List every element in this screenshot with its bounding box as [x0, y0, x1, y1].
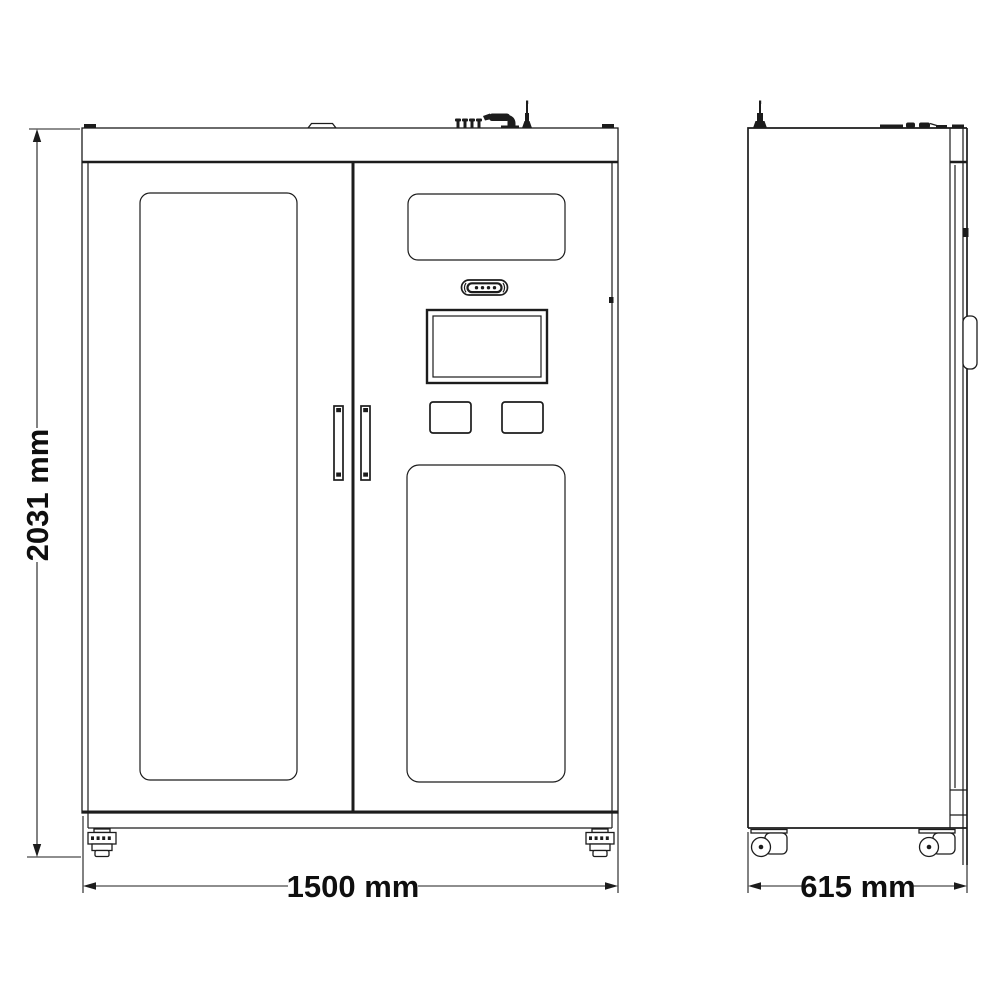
arrowhead-right [954, 882, 967, 890]
pipe-fittings-icon [455, 119, 482, 129]
leveling-caster-front-right [586, 829, 614, 857]
side-top-fittings [753, 101, 964, 129]
side-body [748, 128, 977, 865]
arrowhead-up [33, 129, 41, 142]
width-dimension-label: 1500 mm [287, 869, 420, 904]
side-view [748, 101, 977, 866]
arrowhead-down [33, 844, 41, 857]
depth-dimension-label: 615 mm [800, 869, 915, 904]
height-dimension-label: 2031 mm [20, 429, 55, 562]
door-hinge-mark [609, 297, 614, 303]
cabinet-dimension-drawing: 2031 mm 1500 mm 615 mm [0, 0, 1000, 1000]
arrowhead-left [83, 882, 96, 890]
swivel-caster-side-front [751, 830, 787, 857]
technical-drawing-page: 2031 mm 1500 mm 615 mm [0, 0, 1000, 1000]
indicator-dot [493, 286, 496, 289]
cabinet-body-outline [82, 128, 618, 813]
arrowhead-right [605, 882, 618, 890]
antenna-icon [522, 101, 532, 129]
spray-gun-icon [483, 114, 519, 129]
rear-door-handle[interactable] [963, 316, 977, 369]
indicator-dot [487, 286, 490, 289]
leveling-caster-front-left [88, 829, 116, 857]
arrowhead-left [748, 882, 761, 890]
cabinet-frame [82, 128, 618, 828]
side-outline [748, 128, 967, 828]
swivel-caster-side-rear [919, 830, 955, 857]
rear-hinge-mark [964, 228, 969, 237]
dimension-width: 1500 mm [83, 813, 618, 904]
front-top-fittings [84, 101, 614, 129]
front-view [82, 101, 618, 857]
top-cover-bump [308, 124, 336, 129]
indicator-dot [481, 286, 484, 289]
antenna-side-icon [753, 101, 767, 129]
indicator-dot [475, 286, 478, 289]
dimension-height: 2031 mm [20, 129, 81, 857]
